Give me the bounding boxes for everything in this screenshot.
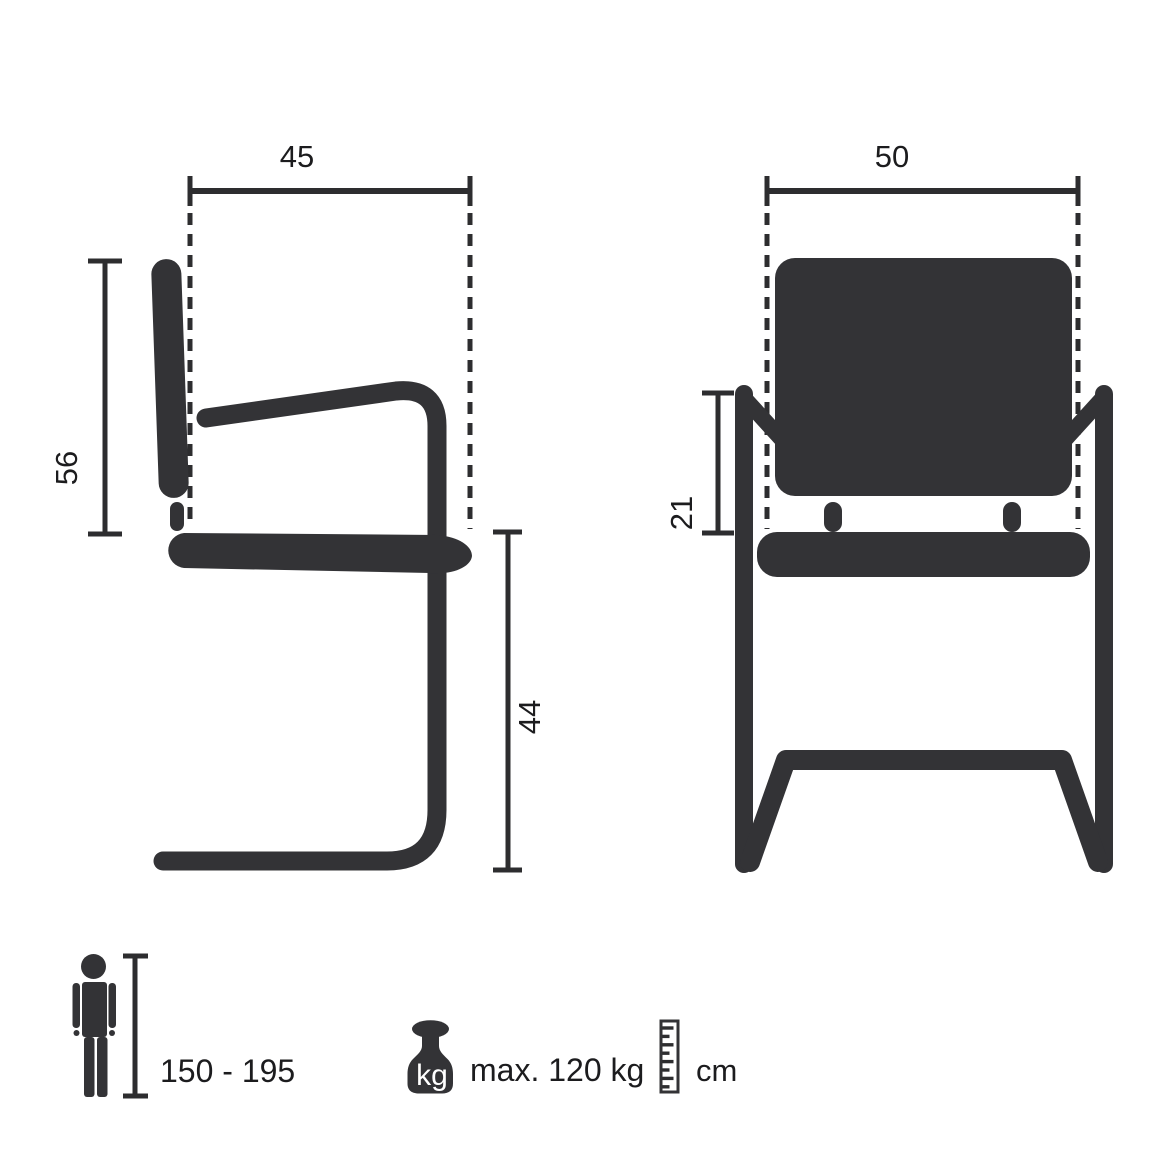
side-width-value: 45 bbox=[280, 139, 314, 174]
user-height-range-label: 150 - 195 bbox=[160, 1053, 295, 1089]
side-seat-height-value: 44 bbox=[512, 700, 547, 734]
seat-front bbox=[757, 532, 1090, 577]
side-seat-height-dimension: 44 bbox=[493, 532, 547, 870]
max-weight-label: max. 120 kg bbox=[470, 1052, 644, 1088]
front-width-value: 50 bbox=[875, 139, 909, 174]
front-back-frame-height-value: 21 bbox=[664, 496, 699, 530]
legend: 150 - 195 kg max. 120 kg bbox=[73, 954, 738, 1097]
front-back-frame-height-dimension: 21 bbox=[664, 393, 734, 533]
side-view: 45 56 44 bbox=[49, 139, 547, 870]
armrest-and-cantilever-frame-side bbox=[163, 391, 437, 861]
person-arm-left bbox=[73, 983, 81, 1028]
side-width-dimension: 45 bbox=[190, 139, 470, 206]
person-leg-right bbox=[97, 1037, 108, 1097]
person-leg-left bbox=[84, 1037, 95, 1097]
person-icon bbox=[73, 954, 117, 1097]
height-dimension bbox=[123, 956, 148, 1096]
person-torso bbox=[82, 982, 107, 1037]
measurement-unit-item: cm bbox=[661, 1021, 737, 1092]
front-view: 50 21 bbox=[664, 139, 1104, 864]
side-backrest-height-value: 56 bbox=[49, 451, 84, 485]
front-width-dimension: 50 bbox=[767, 139, 1078, 206]
side-chair-silhouette bbox=[151, 259, 472, 861]
person-head bbox=[81, 954, 106, 979]
side-backrest-height-dimension: 56 bbox=[49, 261, 122, 534]
seat-side bbox=[168, 533, 472, 573]
weight-icon: kg bbox=[408, 1020, 454, 1093]
backrest-front bbox=[775, 258, 1072, 496]
front-chair-silhouette bbox=[744, 258, 1104, 864]
chair-dimension-diagram: 45 56 44 bbox=[0, 0, 1150, 1150]
diagram-svg: 45 56 44 bbox=[0, 0, 1150, 1150]
max-weight-item: kg max. 120 kg bbox=[408, 1020, 645, 1093]
backrest-connector-side bbox=[170, 502, 184, 531]
ruler-body bbox=[661, 1021, 678, 1092]
person-hand-right bbox=[109, 1030, 115, 1036]
weight-unit-label: kg bbox=[416, 1059, 448, 1092]
ruler-icon bbox=[661, 1021, 678, 1092]
cantilever-base-front bbox=[750, 760, 1098, 862]
person-hand-left bbox=[74, 1030, 80, 1036]
backrest-side bbox=[151, 259, 189, 499]
measurement-unit-label: cm bbox=[696, 1053, 737, 1088]
person-arm-right bbox=[109, 983, 117, 1028]
backrest-connector-left bbox=[824, 502, 842, 532]
backrest-connector-right bbox=[1003, 502, 1021, 532]
user-height-item: 150 - 195 bbox=[73, 954, 296, 1097]
